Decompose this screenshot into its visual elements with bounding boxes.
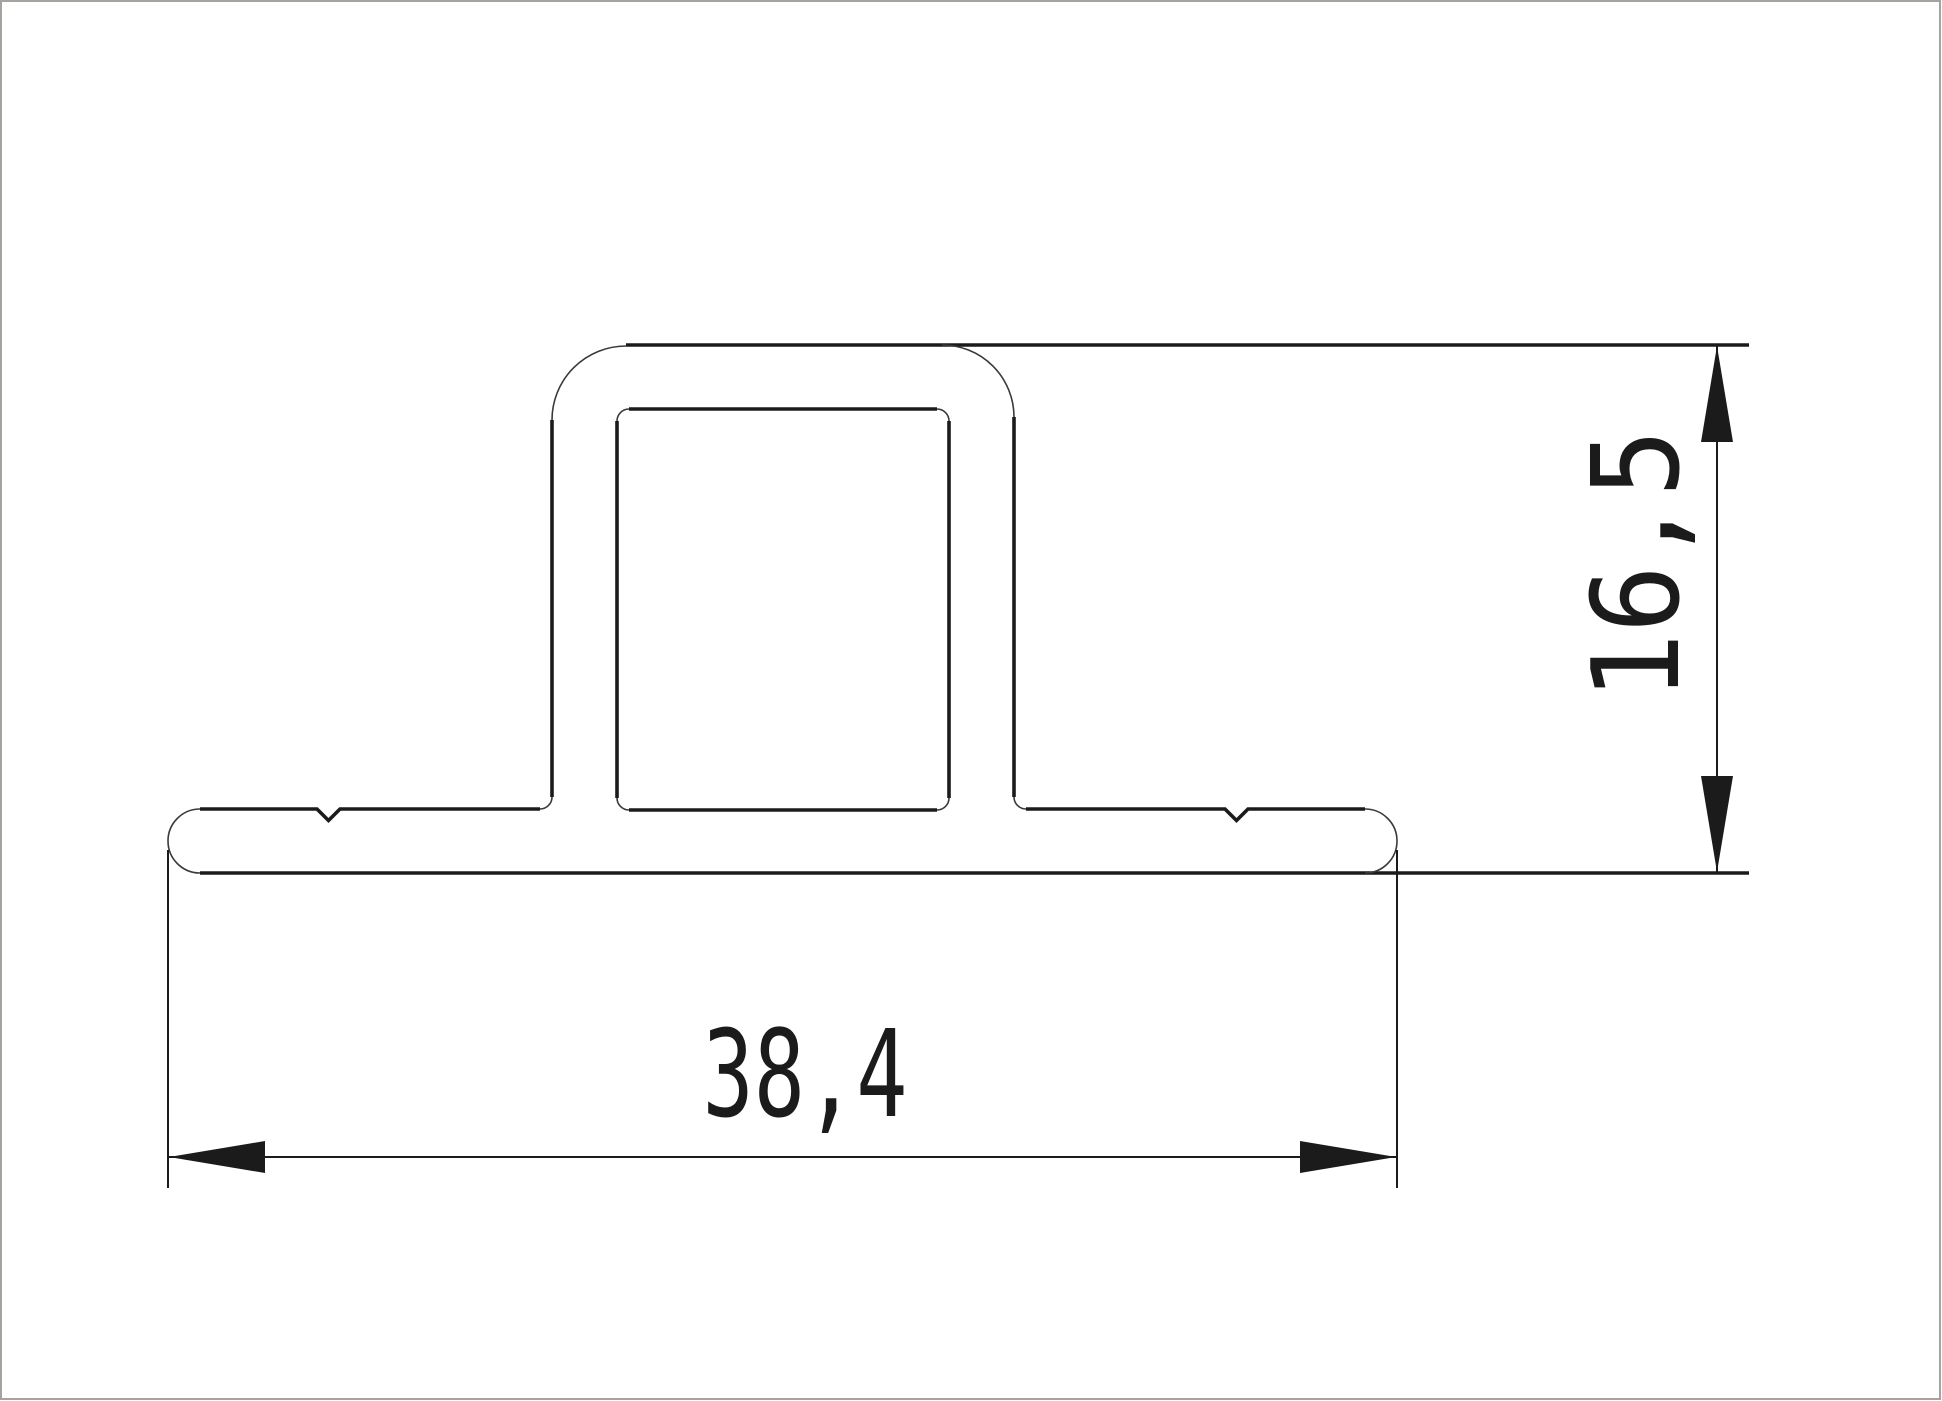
base-left-end-cap [168, 809, 200, 873]
left-wall-foot-fillet [540, 797, 552, 809]
dimension-arrows [169, 346, 1733, 1173]
drawing-sheet: 38,4 16,5 [0, 0, 1942, 1401]
base-right-end-cap [1365, 809, 1397, 873]
height-arrow-down [1701, 776, 1733, 872]
profile-arcs [168, 345, 1397, 873]
tube-top-right-radius [942, 345, 1014, 417]
base-top-left-edge [200, 809, 540, 821]
base-top-right-edge [1026, 809, 1365, 821]
cavity-top-left-radius [617, 409, 629, 421]
width-arrow-left [169, 1141, 265, 1173]
right-wall-foot-fillet [1014, 797, 1026, 809]
cavity-top-right-radius [937, 409, 949, 421]
profile-drawing: 38,4 16,5 [0, 0, 1942, 1401]
height-dimension-label: 16,5 [1568, 429, 1707, 701]
height-arrow-up [1701, 346, 1733, 442]
cavity-bottom-left-radius [617, 798, 629, 810]
dimension-lines [168, 346, 1717, 1188]
cavity-bottom-right-radius [937, 798, 949, 810]
profile-outline [200, 345, 1749, 873]
tube-top-left-radius [552, 346, 626, 420]
width-dimension-label: 38,4 [703, 1006, 908, 1145]
width-arrow-right [1300, 1141, 1396, 1173]
